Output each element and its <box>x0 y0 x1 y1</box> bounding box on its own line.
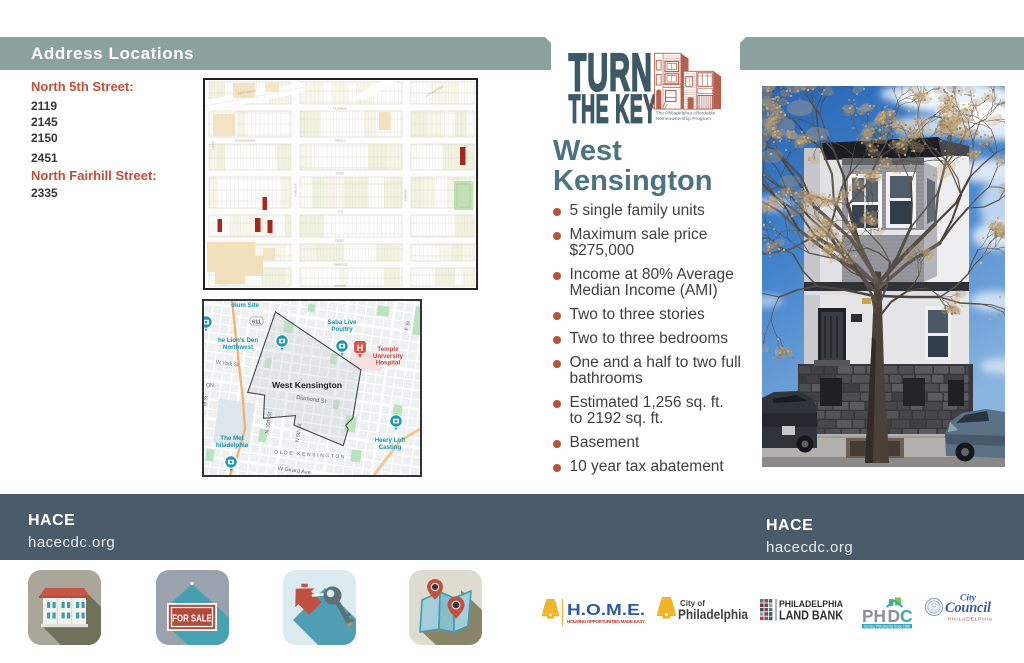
svg-text:PH: PH <box>862 606 886 626</box>
svg-text:Homeownership Program: Homeownership Program <box>656 116 711 122</box>
svg-text:Council: Council <box>945 600 991 616</box>
svg-text:FOR SALE: FOR SALE <box>172 613 211 624</box>
svg-text:Serving Philadelphia Since 196: Serving Philadelphia Since 1965 <box>864 624 910 628</box>
svg-text:Saba LivePoultry: Saba LivePoultry <box>328 319 357 333</box>
svg-text:The Philadelphia Affordable: The Philadelphia Affordable <box>656 111 716 117</box>
svg-text:he Lion's DenNorthwest: he Lion's DenNorthwest <box>218 337 259 351</box>
svg-text:TILGHMAN: TILGHMAN <box>333 107 347 111</box>
svg-text:C: C <box>900 606 913 626</box>
svg-text:ROSE: ROSE <box>336 172 344 176</box>
svg-text:OXFORD: OXFORD <box>334 284 346 288</box>
svg-text:PHILADELPHIA: PHILADELPHIA <box>948 617 993 623</box>
svg-text:Philadelphia: Philadelphia <box>678 606 748 622</box>
svg-text:H.O.M.E.: H.O.M.E. <box>567 602 645 619</box>
svg-text:HANCOCK: HANCOCK <box>294 183 298 197</box>
svg-text:dium Site: dium Site <box>231 302 259 309</box>
svg-text:611: 611 <box>252 319 261 325</box>
svg-text:YTH: YTH <box>337 210 342 214</box>
svg-text:HOWARD: HOWARD <box>404 189 408 201</box>
svg-text:ON: ON <box>206 383 214 389</box>
svg-text:H: H <box>357 343 364 353</box>
svg-text:THE KEY: THE KEY <box>569 86 657 128</box>
svg-text:LOTUS: LOTUS <box>211 140 215 149</box>
svg-text:West Kensington: West Kensington <box>272 380 342 390</box>
svg-text:TREMLL: TREMLL <box>335 139 346 143</box>
svg-text:DANEY: DANEY <box>335 239 344 243</box>
svg-text:Heery LoftCasting: Heery LoftCasting <box>375 437 406 451</box>
svg-text:LAND BANK: LAND BANK <box>779 609 843 623</box>
svg-text:D: D <box>888 606 901 626</box>
svg-text:LAWRENCE: LAWRENCE <box>332 263 347 267</box>
svg-text:SUSQUEHANNA: SUSQUEHANNA <box>235 139 256 143</box>
svg-text:HOUSING OPPORTUNITIES MADE EAS: HOUSING OPPORTUNITIES MADE EASY <box>567 619 646 624</box>
